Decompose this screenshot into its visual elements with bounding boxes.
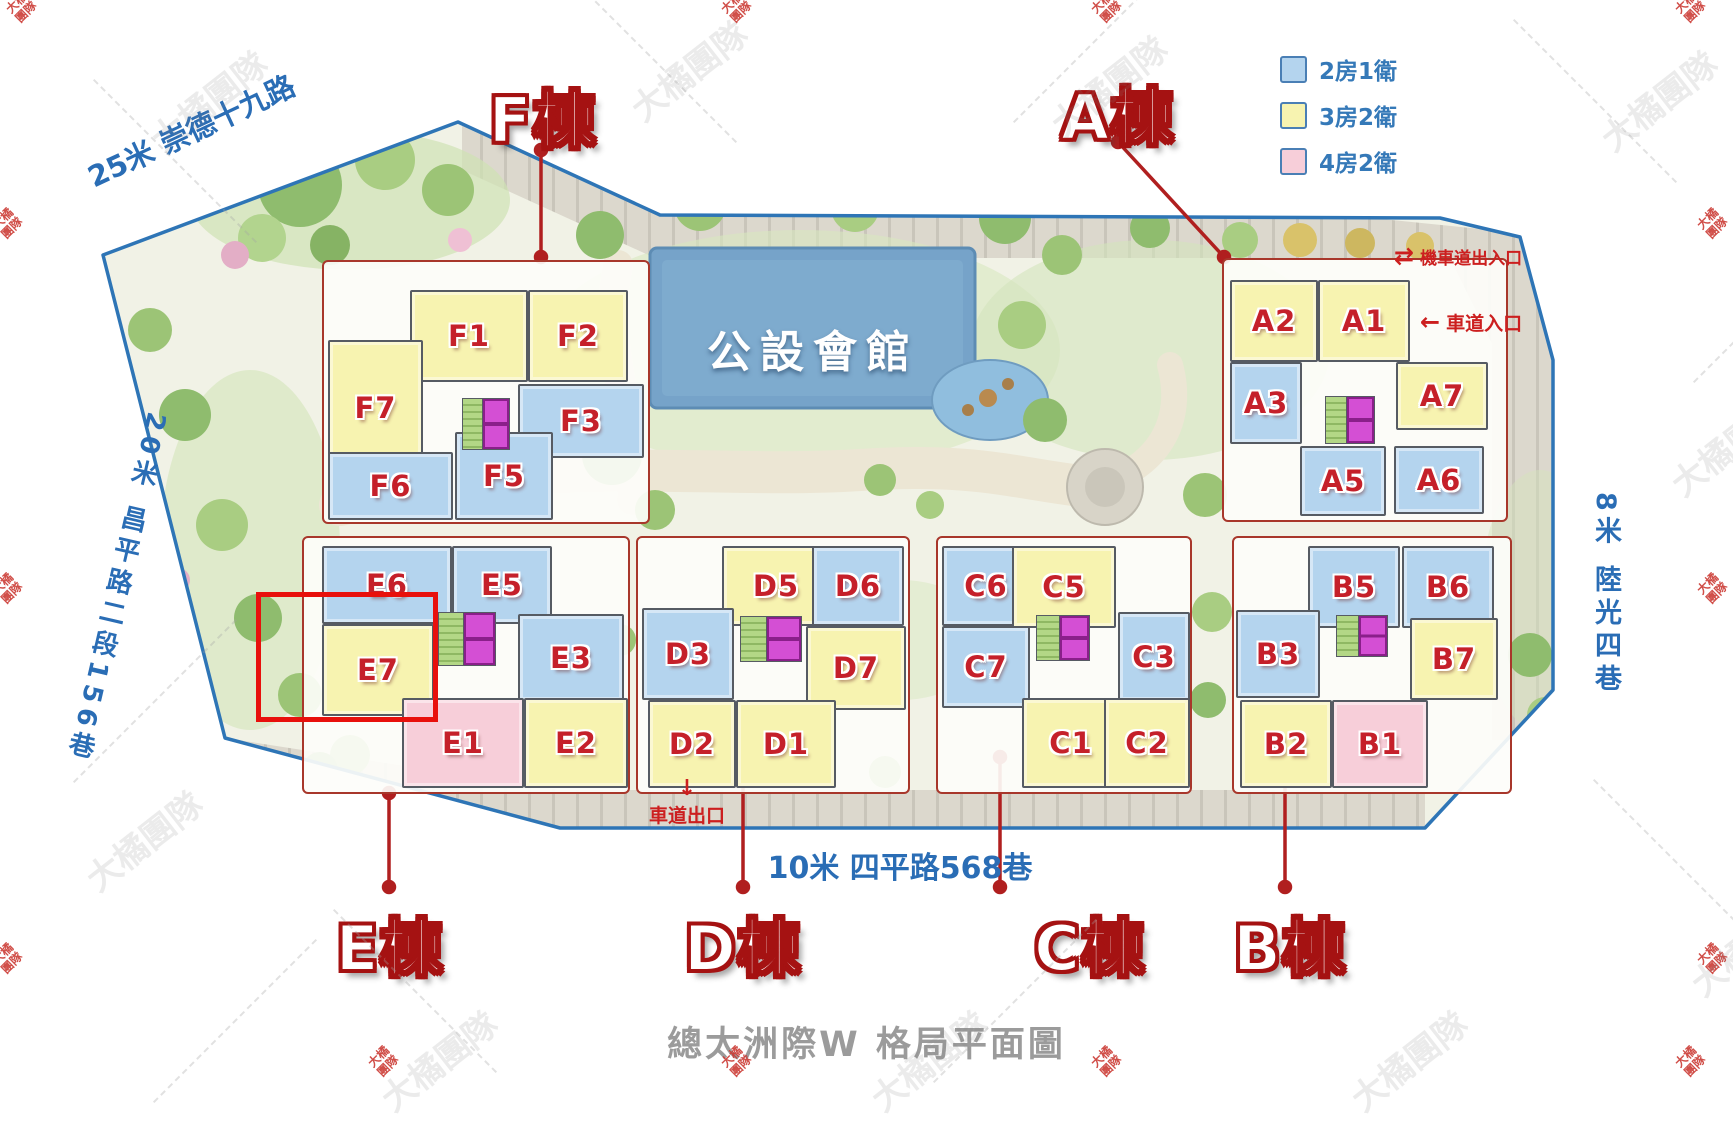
unit-label-E5: E5 xyxy=(481,568,523,602)
legend-swatch-pink xyxy=(1280,148,1307,175)
unit-label-F5: F5 xyxy=(483,459,525,493)
unit-label-D7: D7 xyxy=(833,651,879,685)
unit-C7: C7 xyxy=(942,626,1030,708)
unit-label-F7: F7 xyxy=(355,391,397,425)
elevator-core-D xyxy=(740,616,802,662)
unit-D3: D3 xyxy=(642,608,734,700)
left-arrow-icon: ← xyxy=(1420,308,1440,336)
unit-label-A3: A3 xyxy=(1244,386,1289,420)
unit-label-E1: E1 xyxy=(442,726,484,760)
unit-C2: C2 xyxy=(1104,698,1190,788)
unit-label-B5: B5 xyxy=(1332,570,1376,604)
unit-label-A2: A2 xyxy=(1252,304,1297,338)
two-way-arrow-icon: ⇄ xyxy=(1394,242,1414,270)
building-label-D: D棟 xyxy=(633,898,853,988)
unit-D6: D6 xyxy=(812,546,904,626)
unit-label-B7: B7 xyxy=(1432,642,1476,676)
elevator-icon xyxy=(1059,616,1089,660)
building-label-C: C棟 xyxy=(980,898,1200,988)
unit-label-C3: C3 xyxy=(1132,640,1175,674)
unit-E3: E3 xyxy=(518,614,624,702)
elevator-core-E xyxy=(438,612,496,666)
unit-label-E3: E3 xyxy=(550,641,592,675)
unit-label-C7: C7 xyxy=(964,650,1007,684)
unit-A3: A3 xyxy=(1230,362,1302,444)
unit-label-C6: C6 xyxy=(964,569,1007,603)
building-label-A: A棟 xyxy=(1008,67,1228,157)
down-arrow-icon: ↓ xyxy=(678,776,696,801)
elevator-icon xyxy=(766,617,801,661)
elevator-core-C xyxy=(1036,615,1090,661)
unit-B6: B6 xyxy=(1402,546,1494,628)
page-title: 總太洲際W 格局平面圖 xyxy=(0,1016,1733,1067)
unit-D1: D1 xyxy=(736,700,836,788)
road-label-south: 10米 四平路568巷 xyxy=(700,843,1100,887)
unit-F1: F1 xyxy=(410,290,528,382)
unit-label-F6: F6 xyxy=(370,469,412,503)
clubhouse-label: 公設會館 xyxy=(652,316,974,380)
unit-label-A7: A7 xyxy=(1420,379,1465,413)
elevator-icon xyxy=(1346,397,1374,443)
unit-B7: B7 xyxy=(1410,618,1498,700)
stairs-icon xyxy=(1337,616,1358,656)
stairs-icon xyxy=(1037,616,1059,660)
unit-label-F2: F2 xyxy=(557,319,599,353)
unit-label-A5: A5 xyxy=(1321,464,1366,498)
legend-swatch-blue xyxy=(1280,56,1307,83)
unit-F2: F2 xyxy=(528,290,628,382)
unit-label-D5: D5 xyxy=(753,569,799,603)
stairs-icon xyxy=(741,617,766,661)
stairs-icon xyxy=(1326,397,1346,443)
unit-label-B3: B3 xyxy=(1256,637,1300,671)
stairs-icon xyxy=(439,613,463,665)
unit-label-B1: B1 xyxy=(1358,727,1402,761)
elevator-core-B xyxy=(1336,615,1388,657)
legend-item-3b2b: 3房2衛 xyxy=(1280,98,1397,132)
unit-D2: D2 xyxy=(648,700,736,788)
unit-E2: E2 xyxy=(524,698,628,788)
unit-label-C2: C2 xyxy=(1125,726,1168,760)
unit-A2: A2 xyxy=(1230,280,1318,362)
building-label-F: F棟 xyxy=(433,70,653,160)
unit-label-E2: E2 xyxy=(555,726,597,760)
car-entrance-label: ← 車道入口 xyxy=(1420,308,1522,336)
elevator-icon xyxy=(1358,616,1387,656)
unit-A7: A7 xyxy=(1396,362,1488,430)
elevator-icon xyxy=(463,613,495,665)
unit-label-B6: B6 xyxy=(1426,570,1470,604)
legend-item-2b1b: 2房1衛 xyxy=(1280,52,1397,86)
elevator-core-F xyxy=(462,398,510,450)
road-label-east: 8米 陸光四巷 xyxy=(1586,492,1625,697)
unit-label-D1: D1 xyxy=(763,727,809,761)
unit-label-B2: B2 xyxy=(1264,727,1308,761)
unit-label-D3: D3 xyxy=(665,637,711,671)
unit-label-D6: D6 xyxy=(835,569,881,603)
stairs-icon xyxy=(463,399,482,449)
unit-label-C1: C1 xyxy=(1049,726,1092,760)
unit-label-F1: F1 xyxy=(448,319,490,353)
unit-A6: A6 xyxy=(1394,446,1484,514)
site-plan: F1F2F7F3F6F5A2A1A3A7A5A6E6E5E7E3E1E2D5D6… xyxy=(0,0,1733,1082)
unit-label-F3: F3 xyxy=(560,404,602,438)
legend-item-4b2b: 4房2衛 xyxy=(1280,144,1397,178)
unit-label-D2: D2 xyxy=(669,727,715,761)
legend-swatch-yellow xyxy=(1280,102,1307,129)
moto-entrance-label: ⇄ 機車道出入口 xyxy=(1394,242,1522,270)
unit-B1: B1 xyxy=(1332,700,1428,788)
unit-B3: B3 xyxy=(1236,610,1320,698)
unit-C3: C3 xyxy=(1118,612,1190,702)
elevator-core-A xyxy=(1325,396,1375,444)
selected-unit-highlight xyxy=(256,592,438,722)
unit-A5: A5 xyxy=(1300,446,1386,516)
unit-A1: A1 xyxy=(1318,280,1410,362)
building-label-B: B棟 xyxy=(1180,898,1400,988)
car-exit-label: ↓ 車道出口 xyxy=(632,776,742,828)
unit-D7: D7 xyxy=(806,626,906,710)
unit-label-A1: A1 xyxy=(1342,304,1387,338)
elevator-icon xyxy=(482,399,509,449)
unit-label-A6: A6 xyxy=(1417,463,1462,497)
plaza xyxy=(1067,449,1143,525)
legend: 2房1衛 3房2衛 4房2衛 xyxy=(1280,52,1397,178)
unit-B2: B2 xyxy=(1240,700,1332,788)
unit-F6: F6 xyxy=(328,452,453,520)
unit-label-C5: C5 xyxy=(1042,570,1085,604)
